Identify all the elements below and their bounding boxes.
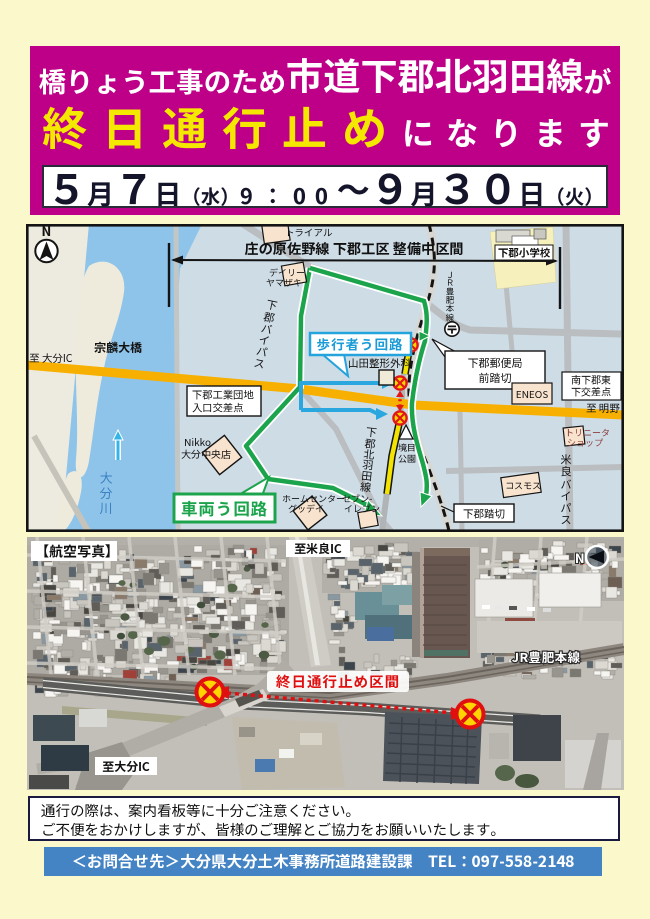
- svg-text:至大分IC: 至大分IC: [102, 758, 150, 775]
- svg-text:ENEOS: ENEOS: [516, 386, 548, 401]
- svg-text:ＪＲ豊肥本線: ＪＲ豊肥本線: [444, 270, 456, 323]
- svg-text:下郡小学校: 下郡小学校: [498, 246, 551, 261]
- svg-text:下郡郵便局: 下郡郵便局: [468, 355, 523, 371]
- svg-text:下郡踏切: 下郡踏切: [463, 507, 505, 522]
- svg-text:下交差点: 下交差点: [571, 384, 611, 399]
- svg-text:ヤマザキ: ヤマザキ: [266, 276, 302, 289]
- svg-text:トライアル: トライアル: [285, 225, 333, 239]
- svg-text:大分川: 大分川: [97, 471, 116, 516]
- svg-text:【航空写真】: 【航空写真】: [35, 542, 119, 562]
- svg-text:JR豊肥本線: JR豊肥本線: [512, 647, 581, 666]
- svg-text:山田整形外科: 山田整形外科: [348, 356, 411, 371]
- svg-text:入口交差点: 入口交差点: [192, 400, 244, 415]
- svg-text:至 明野: 至 明野: [586, 401, 620, 416]
- svg-text:N: N: [575, 548, 585, 567]
- svg-text:歩行者う回路: 歩行者う回路: [317, 334, 404, 354]
- svg-text:前踏切: 前踏切: [479, 370, 512, 386]
- svg-text:コスモス: コスモス: [505, 479, 541, 492]
- svg-text:至米良IC: 至米良IC: [294, 540, 342, 557]
- svg-text:ショップ: ショップ: [567, 436, 604, 449]
- svg-text:宗麟大橋: 宗麟大橋: [94, 339, 143, 356]
- svg-text:グッデイ: グッデイ: [288, 502, 324, 515]
- svg-text:イレブン: イレブン: [344, 502, 380, 515]
- svg-text:米良バイパス: 米良バイパス: [558, 454, 574, 526]
- svg-text:終日通行止め区間: 終日通行止め区間: [276, 671, 400, 692]
- svg-text:公園: 公園: [398, 452, 416, 465]
- svg-text:大分中央店: 大分中央店: [181, 446, 231, 461]
- svg-text:車両う回路: 車両う回路: [181, 496, 269, 520]
- svg-text:至 大分IC: 至 大分IC: [29, 351, 73, 366]
